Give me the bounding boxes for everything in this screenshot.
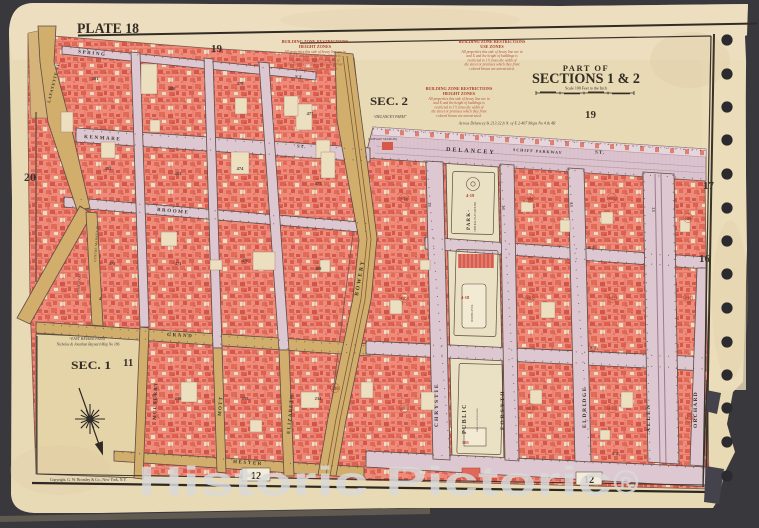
svg-text:SEC. 1: SEC. 1 (71, 358, 111, 372)
svg-text:475: 475 (315, 181, 323, 186)
svg-text:4-19: 4-19 (466, 193, 475, 198)
svg-text:SEC. 2: SEC. 2 (370, 94, 408, 108)
svg-text:17: 17 (703, 180, 715, 192)
svg-text:4-18: 4-18 (461, 295, 470, 300)
svg-text:GIRLS PLAYGROUND: GIRLS PLAYGROUND (476, 408, 479, 432)
svg-text:19: 19 (585, 109, 597, 121)
svg-text:“DELANCEY FARM”: “DELANCEY FARM” (373, 114, 407, 119)
svg-text:“EAST BAYARD FARM”: “EAST BAYARD FARM” (69, 336, 107, 341)
svg-text:470: 470 (242, 258, 250, 263)
svg-text:483: 483 (175, 171, 183, 176)
svg-text:FORSYTH: FORSYTH (500, 389, 506, 430)
svg-text:ELDRIDGE: ELDRIDGE (582, 386, 588, 428)
svg-text:(SUBWAY STATION): (SUBWAY STATION) (368, 137, 397, 141)
svg-text:colored brown are unrestricted: colored brown are unrestricted. (436, 114, 481, 118)
svg-text:P A R K -: P A R K - (467, 210, 472, 230)
svg-text:Nicholas & Jonathan Baynard Ma: Nicholas & Jonathan Baynard Map No 186 (56, 343, 120, 347)
svg-text:colored brown are unrestricted: colored brown are unrestricted. (292, 67, 337, 71)
svg-text:ST.: ST. (595, 151, 605, 157)
svg-text:ST.: ST. (651, 207, 656, 212)
svg-text:ST.: ST. (612, 451, 622, 457)
svg-text:ORCHARD: ORCHARD (693, 391, 699, 428)
svg-text:HEIGHT ZONES: HEIGHT ZONES (443, 91, 476, 96)
svg-text:P U B L I C: P U B L I C (462, 404, 468, 434)
svg-text:CENTRAL PLAYGROUND: CENTRAL PLAYGROUND (474, 202, 477, 232)
svg-text:305: 305 (462, 440, 470, 445)
svg-text:Across Delancey St 213.32 ft N: Across Delancey St 213.32 ft N. of E 2-4… (458, 121, 556, 126)
svg-text:474: 474 (237, 166, 245, 171)
svg-text:235: 235 (242, 396, 250, 401)
svg-text:R: R (620, 475, 632, 492)
svg-text:ST.: ST. (590, 345, 600, 350)
svg-text:ST.: ST. (569, 202, 574, 207)
svg-text:477: 477 (307, 111, 315, 116)
svg-text:234: 234 (315, 396, 323, 401)
svg-text:482: 482 (105, 166, 113, 171)
svg-text:472: 472 (109, 261, 117, 266)
svg-text:479: 479 (237, 81, 245, 86)
svg-text:HEIGHT ZONES: HEIGHT ZONES (299, 44, 332, 49)
svg-text:ST.: ST. (297, 144, 307, 150)
svg-text:ALLEN: ALLEN (646, 403, 652, 432)
svg-text:ST.: ST. (588, 245, 598, 251)
svg-text:ST.: ST. (501, 205, 506, 210)
svg-text:11: 11 (123, 357, 133, 369)
svg-text:colored brown are unrestricted: colored brown are unrestricted. (469, 67, 514, 71)
svg-text:480: 480 (169, 86, 177, 91)
svg-text:236: 236 (175, 396, 183, 401)
svg-text:ST.: ST. (427, 202, 432, 207)
svg-text:16: 16 (699, 253, 711, 265)
svg-text:ST: ST (295, 74, 303, 80)
svg-text:Scale 100 Feet to the Inch: Scale 100 Feet to the Inch (565, 86, 607, 91)
svg-text:USE ZONES: USE ZONES (480, 44, 504, 49)
svg-text:CHRYSTIE: CHRYSTIE (434, 382, 440, 427)
svg-text:Historic Pictoric: Historic Pictoric (138, 458, 612, 504)
svg-text:481: 481 (92, 76, 100, 81)
svg-text:20: 20 (24, 170, 36, 184)
svg-text:WADING POOL: WADING POOL (471, 304, 474, 322)
svg-text:19: 19 (211, 43, 223, 55)
svg-text:471: 471 (175, 261, 183, 266)
svg-text:469: 469 (315, 266, 323, 271)
